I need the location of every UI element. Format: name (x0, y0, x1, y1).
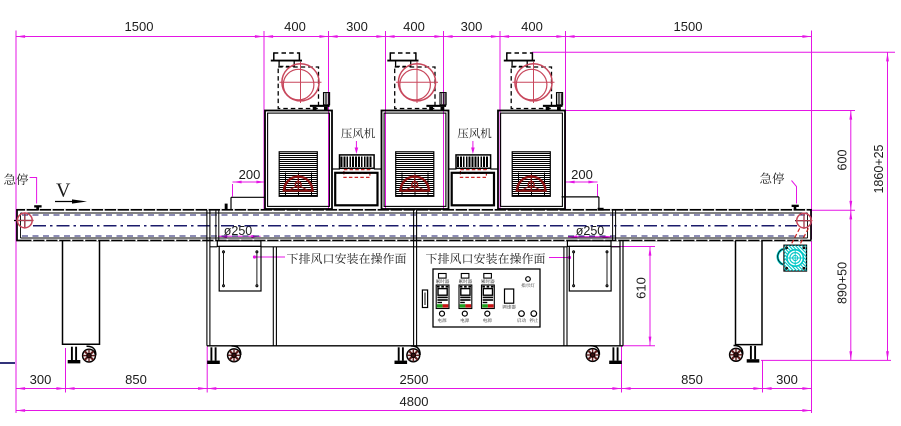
svg-text:电源: 电源 (460, 318, 470, 324)
svg-text:200: 200 (571, 167, 593, 182)
svg-text:急停: 急停 (4, 170, 30, 188)
svg-text:急停: 急停 (760, 169, 786, 187)
svg-text:累时器: 累时器 (436, 279, 450, 285)
svg-text:890+50: 890+50 (835, 262, 849, 304)
svg-text:1860+25: 1860+25 (872, 144, 886, 193)
svg-text:指示灯: 指示灯 (521, 283, 535, 289)
svg-text:850: 850 (125, 372, 147, 387)
svg-text:2500: 2500 (400, 372, 429, 387)
svg-text:200: 200 (239, 167, 261, 182)
svg-text:启动: 启动 (517, 318, 527, 324)
svg-text:下排风口安装在操作面: 下排风口安装在操作面 (426, 250, 546, 267)
svg-text:调速器: 调速器 (502, 304, 516, 310)
svg-text:电源: 电源 (437, 318, 447, 324)
svg-text:电源: 电源 (483, 318, 493, 324)
svg-text:1500: 1500 (125, 19, 154, 34)
svg-text:压风机: 压风机 (341, 126, 376, 142)
svg-text:300: 300 (461, 19, 483, 34)
svg-text:300: 300 (776, 372, 798, 387)
svg-text:850: 850 (681, 372, 703, 387)
svg-text:300: 300 (346, 19, 368, 34)
svg-text:4800: 4800 (400, 394, 429, 409)
svg-text:停止: 停止 (529, 318, 539, 324)
svg-text:400: 400 (521, 19, 543, 34)
svg-text:400: 400 (403, 19, 425, 34)
svg-text:600: 600 (835, 150, 849, 171)
svg-text:下排风口安装在操作面: 下排风口安装在操作面 (287, 250, 407, 267)
svg-text:300: 300 (30, 372, 52, 387)
svg-text:V: V (56, 180, 71, 202)
svg-text:1500: 1500 (674, 19, 703, 34)
svg-text:累时器: 累时器 (481, 279, 495, 285)
svg-text:累时器: 累时器 (458, 279, 472, 285)
svg-text:610: 610 (634, 277, 649, 299)
svg-text:400: 400 (284, 19, 306, 34)
svg-text:压风机: 压风机 (457, 126, 492, 142)
